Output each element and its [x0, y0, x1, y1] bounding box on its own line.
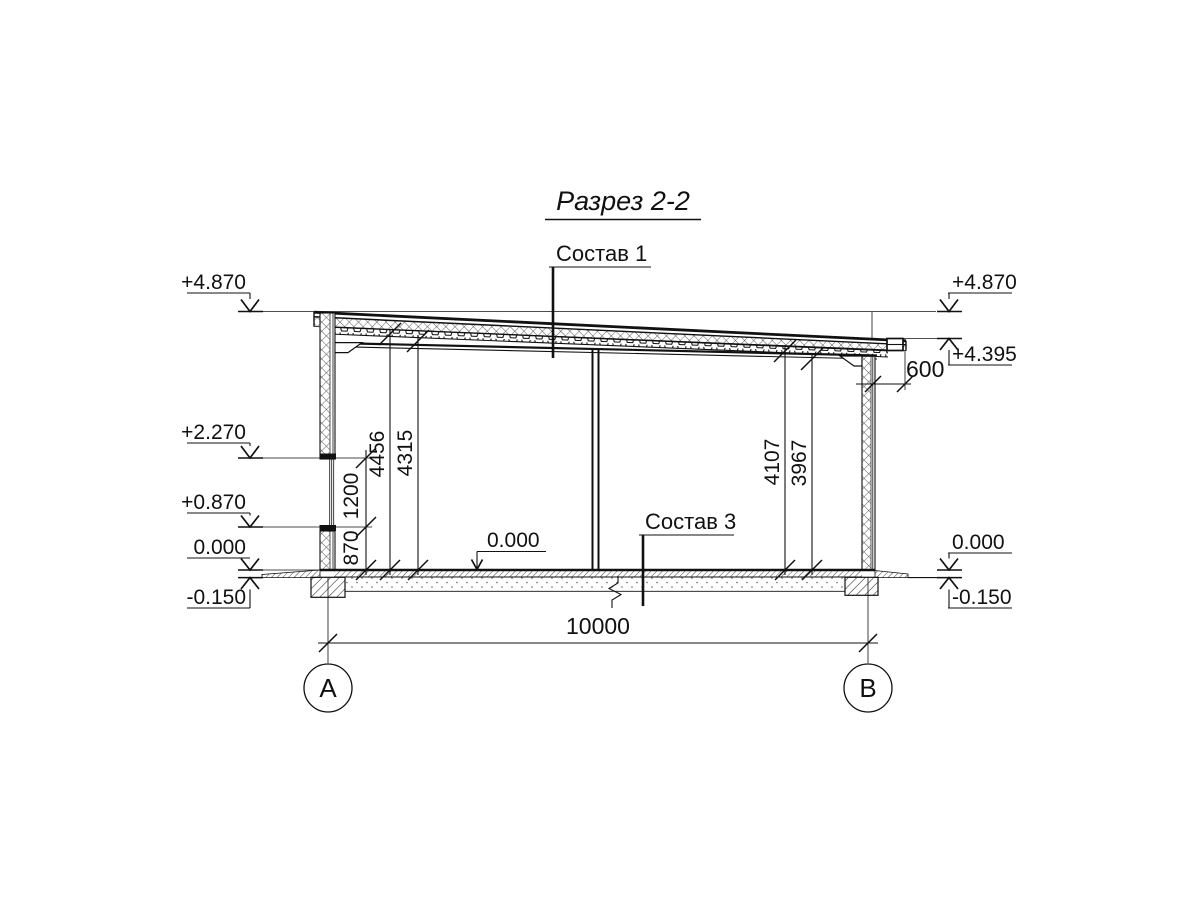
middle-column	[592, 349, 599, 570]
beam-haunch-right	[840, 356, 862, 366]
wall-a	[320, 313, 337, 570]
window-head	[320, 454, 337, 460]
dim-600: 600	[906, 356, 944, 382]
dim-4107: 4107	[761, 439, 784, 486]
level-left-4870: +4.870	[181, 271, 246, 294]
elevation-marks-right: +4.870 +4.395 0.000 -0.150	[937, 271, 1017, 609]
title-block: Разрез 2-2	[545, 186, 701, 220]
window-glazing	[330, 459, 334, 525]
drawing-canvas: Разрез 2-2 Состав 1 Состав 3 +4.870 +2.2…	[0, 0, 1200, 900]
page-title: Разрез 2-2	[556, 186, 690, 216]
section-drawing-2-2: Разрез 2-2 Состав 1 Состав 3 +4.870 +2.2…	[0, 0, 1200, 900]
elevation-marks-left: +4.870 +2.270 +0.870 0.000 -0.150	[181, 271, 263, 609]
level-left-0870: +0.870	[181, 491, 246, 514]
level-right-0000: 0.000	[952, 531, 1005, 554]
dimension-overall: 10000 А В	[304, 577, 892, 712]
window-sill	[320, 525, 337, 531]
callout-sostav1-label: Состав 1	[556, 241, 647, 266]
dim-10000: 10000	[566, 613, 630, 639]
blind-area-left	[262, 570, 320, 578]
dim-1200: 1200	[340, 473, 363, 520]
vertical-dimensions: 870 1200 4456 4315 4107 3967	[340, 323, 823, 580]
dim-4315: 4315	[394, 430, 417, 477]
axis-label-a: А	[319, 673, 337, 703]
callout-sostav3-label: Состав 3	[645, 509, 736, 534]
blind-area-right	[875, 571, 908, 578]
dim-870: 870	[340, 530, 363, 565]
floor-underlayer	[345, 578, 845, 592]
foundation-right	[845, 577, 878, 595]
dim-3967: 3967	[788, 440, 811, 487]
level-right-4395: +4.395	[952, 343, 1017, 366]
floor-and-ground	[244, 570, 953, 608]
roof-assembly	[314, 312, 906, 366]
dim-4456: 4456	[366, 431, 389, 478]
level-right-minus0150: -0.150	[952, 586, 1012, 609]
axis-label-b: В	[859, 673, 876, 703]
level-left-minus0150: -0.150	[186, 586, 246, 609]
level-interior-0000: 0.000	[487, 529, 540, 552]
elevation-mark-interior: 0.000	[472, 529, 547, 570]
level-left-2270: +2.270	[181, 421, 246, 444]
level-left-0000: 0.000	[193, 536, 246, 559]
level-right-4870: +4.870	[952, 271, 1017, 294]
